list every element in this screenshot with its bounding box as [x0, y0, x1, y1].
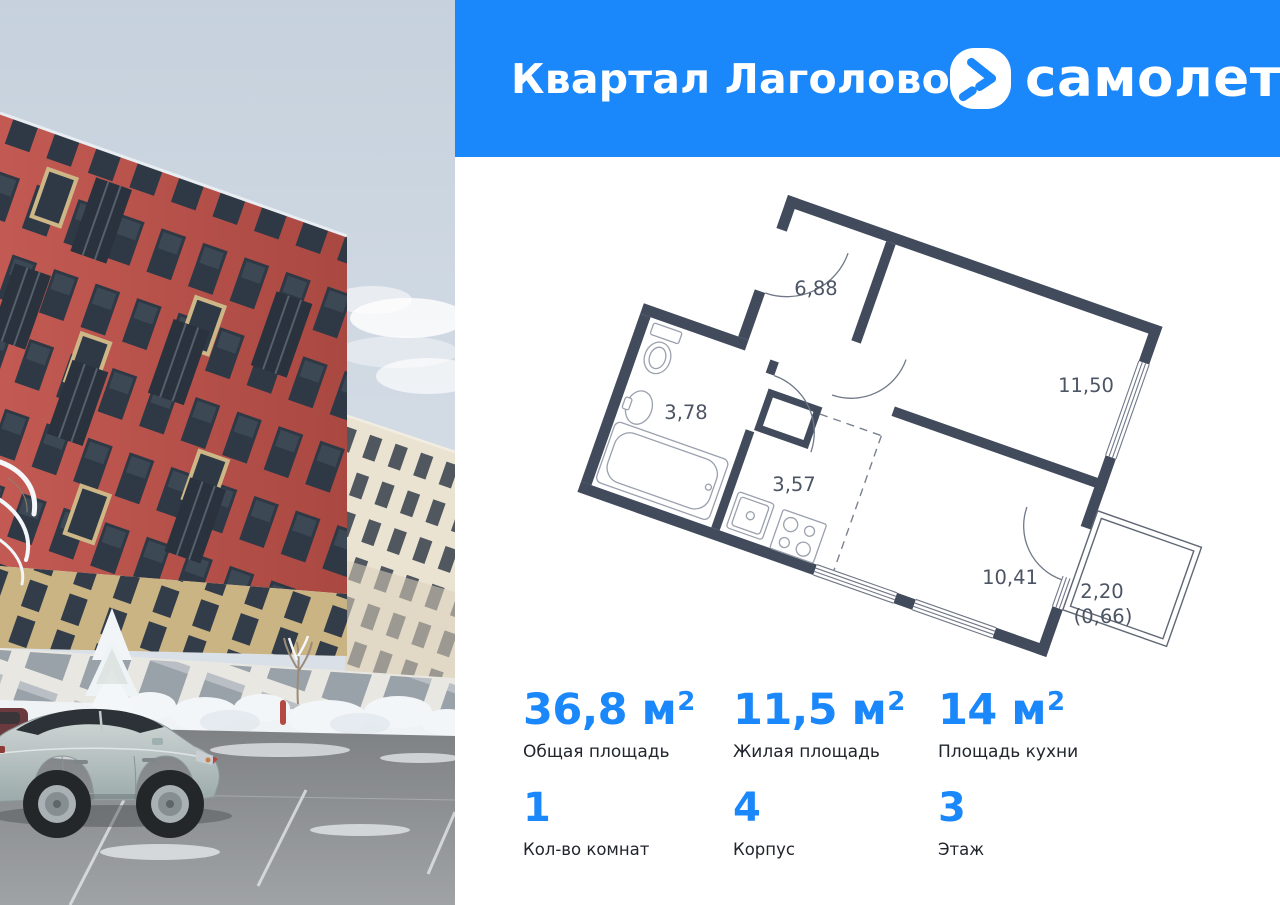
- shaft: [758, 393, 817, 445]
- stat-kitchen-area: 14 м2 Площадь кухни: [938, 686, 1188, 762]
- room-label-hallway: 6,88: [794, 277, 837, 300]
- stat-value: 14 м2: [938, 686, 1188, 735]
- stat-label: Кол-во комнат: [523, 840, 733, 859]
- page-title: Квартал Лаголово: [511, 55, 950, 103]
- stat-label: Этаж: [938, 840, 1188, 859]
- stat-total-area: 36,8 м2 Общая площадь: [523, 686, 733, 762]
- stat-value: 1: [523, 785, 733, 831]
- room-label-corridor: 3,57: [772, 473, 815, 496]
- room-label-living: 10,41: [982, 566, 1038, 589]
- stat-value: 4: [733, 785, 938, 831]
- stat-label: Корпус: [733, 840, 938, 859]
- stat-rooms: 1 Кол-во комнат: [523, 785, 733, 859]
- room-label-bedroom: 11,50: [1058, 374, 1114, 397]
- apartment-stats: 36,8 м2 Общая площадь 11,5 м2 Жилая площ…: [523, 686, 1188, 859]
- stat-value: 3: [938, 785, 1188, 831]
- stat-label: Жилая площадь: [733, 742, 938, 762]
- stat-label: Общая площадь: [523, 742, 733, 762]
- listing-panel: Квартал Лаголово самолет: [455, 0, 1280, 905]
- room-label-balcony-reduced: (0,66): [1074, 605, 1133, 628]
- red-bollard: [280, 700, 286, 725]
- brand-logo: самолет: [950, 48, 1280, 109]
- stat-value: 11,5 м2: [733, 686, 938, 735]
- stat-floor: 3 Этаж: [938, 785, 1188, 859]
- building-photo: [0, 0, 455, 905]
- room-label-bathroom: 3,78: [664, 401, 707, 424]
- stat-living-area: 11,5 м2 Жилая площадь: [733, 686, 938, 762]
- stat-building: 4 Корпус: [733, 785, 938, 859]
- stat-label: Площадь кухни: [938, 742, 1188, 762]
- room-label-balcony: 2,20: [1080, 580, 1123, 603]
- stat-value: 36,8 м2: [523, 686, 733, 735]
- brand-name: самолет: [1025, 52, 1280, 105]
- header: Квартал Лаголово самолет: [455, 0, 1280, 157]
- samolet-icon: [950, 48, 1011, 109]
